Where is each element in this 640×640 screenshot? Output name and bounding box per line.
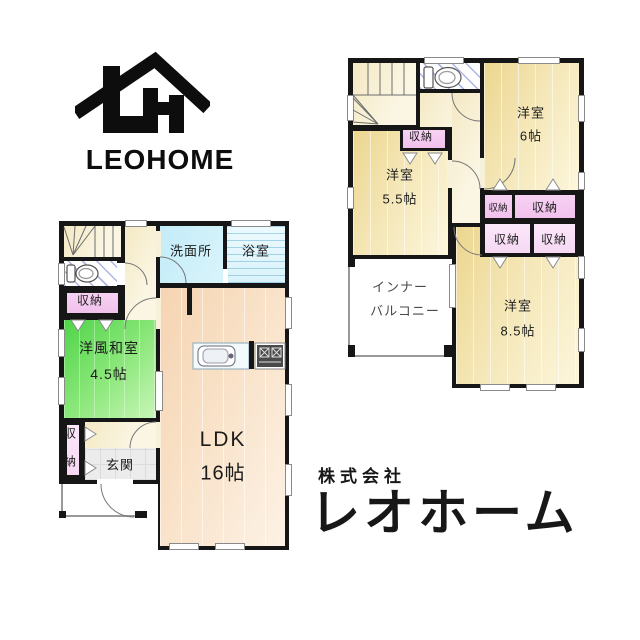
closet-label: 収納 [541,231,567,248]
floor1-symbols [59,221,289,556]
kitchen-icon [193,341,285,369]
closet-label: 収納 [532,199,558,216]
company-prefix: 株式会社 [318,462,620,487]
room-label-bedroom55: 洋室 [386,165,414,184]
closet-label: 収納 [488,200,507,214]
stairs-icon [64,226,113,257]
room-size-bedroom85: 8.5帖 [500,321,535,340]
balcony-label-line1: インナー [372,277,428,296]
room-label-washroom: 洗面所 [170,241,212,260]
room-size-ldk: 16帖 [200,457,245,486]
company-name: レオホーム [310,488,620,539]
room-size-bedroom55: 5.5帖 [382,189,417,208]
balcony-label-line2: バルコニー [370,301,440,320]
closet-label: 収納 [409,128,433,144]
company-name-block: 株式会社 レオホーム [310,462,620,539]
door-arcs [101,257,186,517]
toilet-icon [67,265,98,282]
closet-label: 収納 [494,231,520,248]
room-label-bathroom: 浴室 [242,241,270,260]
floor1-plan: 洗面所 浴室 収納 洋風和室 4.5帖 LDK 16帖 収 納 玄関 [59,221,289,556]
room-size-bedroom6: 6帖 [520,126,542,145]
room-label-bedroom6: 洋室 [517,103,545,122]
room-label-entrance: 玄関 [106,455,134,474]
room-label-bedroom85: 洋室 [504,296,532,315]
room-label-ldk: LDK [200,428,247,452]
toilet-icon [424,67,461,88]
leohome-house-icon [75,50,210,140]
closet-label-vertical-top: 収 [64,425,76,442]
stairs-icon [353,63,416,124]
floorplan-page: LEOHOME [0,0,640,640]
leohome-logo-text: LEOHOME [62,144,258,176]
room-label-japanese: 洋風和室 [79,338,139,358]
leohome-logo [75,50,245,150]
closet-label-vertical-bottom: 納 [64,453,76,470]
closet-label: 収納 [77,292,103,309]
floor2-plan: 洋室 6帖 収納 洋室 5.5帖 収納 収納 収納 収納 インナー バルコニー … [348,58,584,392]
floor2-symbols [348,58,584,392]
room-size-japanese: 4.5帖 [90,364,127,384]
